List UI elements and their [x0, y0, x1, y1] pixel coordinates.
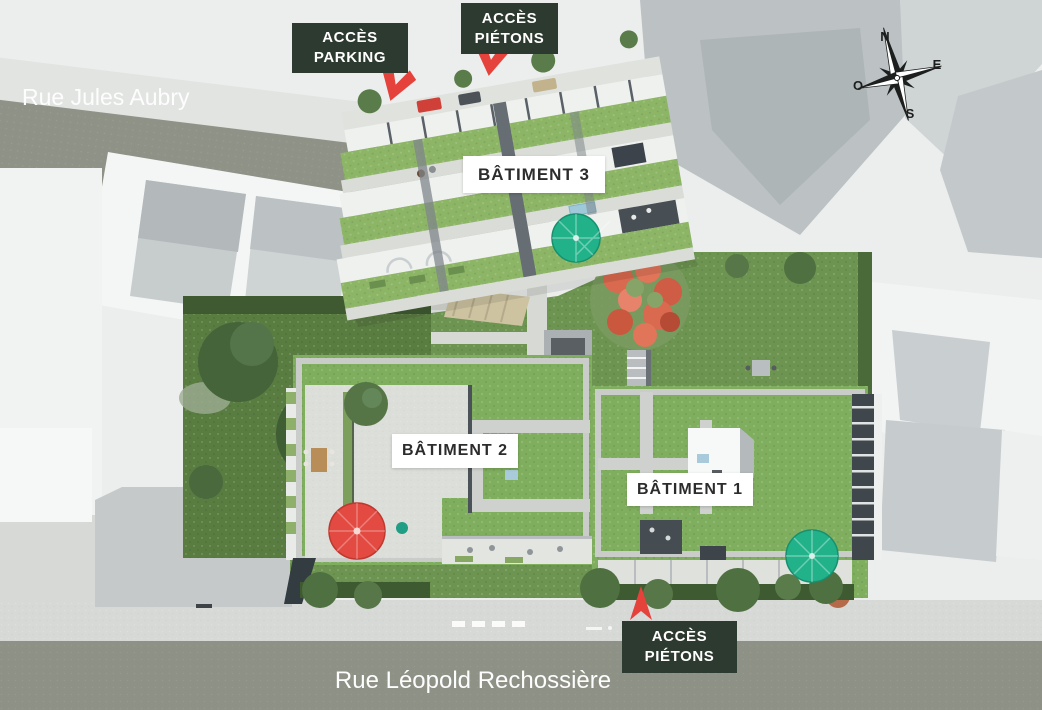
skylight: [505, 470, 518, 480]
access-pedestrian-bottom-line1: ACCÈS: [652, 627, 708, 647]
tree: [302, 572, 338, 608]
compass-south-label: S: [906, 106, 915, 121]
roof-terrace-dark: [640, 520, 682, 554]
batiment-1-label: BÂTIMENT 1: [627, 473, 753, 506]
tree: [198, 322, 278, 402]
site-plan-canvas: N E S O Rue Jules Aubry Rue Léopold Rech…: [0, 0, 1042, 710]
access-pedestrian-top-line1: ACCÈS: [482, 9, 538, 29]
access-pedestrian-top-label: ACCÈS PIÉTONS: [461, 3, 558, 54]
access-pedestrian-bottom-label: ACCÈS PIÉTONS: [622, 621, 737, 673]
tree: [643, 579, 673, 609]
access-pedestrian-top-line2: PIÉTONS: [475, 29, 545, 49]
street-name-top: Rue Jules Aubry: [22, 84, 189, 111]
tree: [344, 382, 388, 426]
east-facade-windows: [852, 394, 882, 560]
access-parking-line2: PARKING: [314, 48, 386, 68]
compass-west-label: O: [853, 78, 863, 93]
penthouse: [688, 428, 754, 478]
teal-chair: [396, 522, 408, 534]
batiment-3-label: BÂTIMENT 3: [463, 156, 605, 193]
tree: [580, 568, 620, 608]
west-balconies: [286, 388, 296, 560]
compass-east-label: E: [933, 57, 942, 72]
tree: [354, 581, 382, 609]
access-parking-line1: ACCÈS: [322, 28, 378, 48]
batiment-2-label: BÂTIMENT 2: [392, 434, 518, 468]
tree: [725, 254, 749, 278]
tree: [784, 252, 816, 284]
teal-umbrella-icon: [786, 530, 838, 582]
tree: [189, 465, 223, 499]
tree: [716, 568, 760, 612]
compass-north-label: N: [880, 29, 889, 44]
red-umbrella-icon: [329, 503, 385, 559]
street-name-bottom: Rue Léopold Rechossière: [273, 667, 673, 695]
terrace-table: [311, 448, 327, 472]
context-buildings-right: [868, 282, 1042, 562]
access-pedestrian-bottom-line2: PIÉTONS: [645, 647, 715, 667]
access-parking-label: ACCÈS PARKING: [292, 23, 408, 73]
